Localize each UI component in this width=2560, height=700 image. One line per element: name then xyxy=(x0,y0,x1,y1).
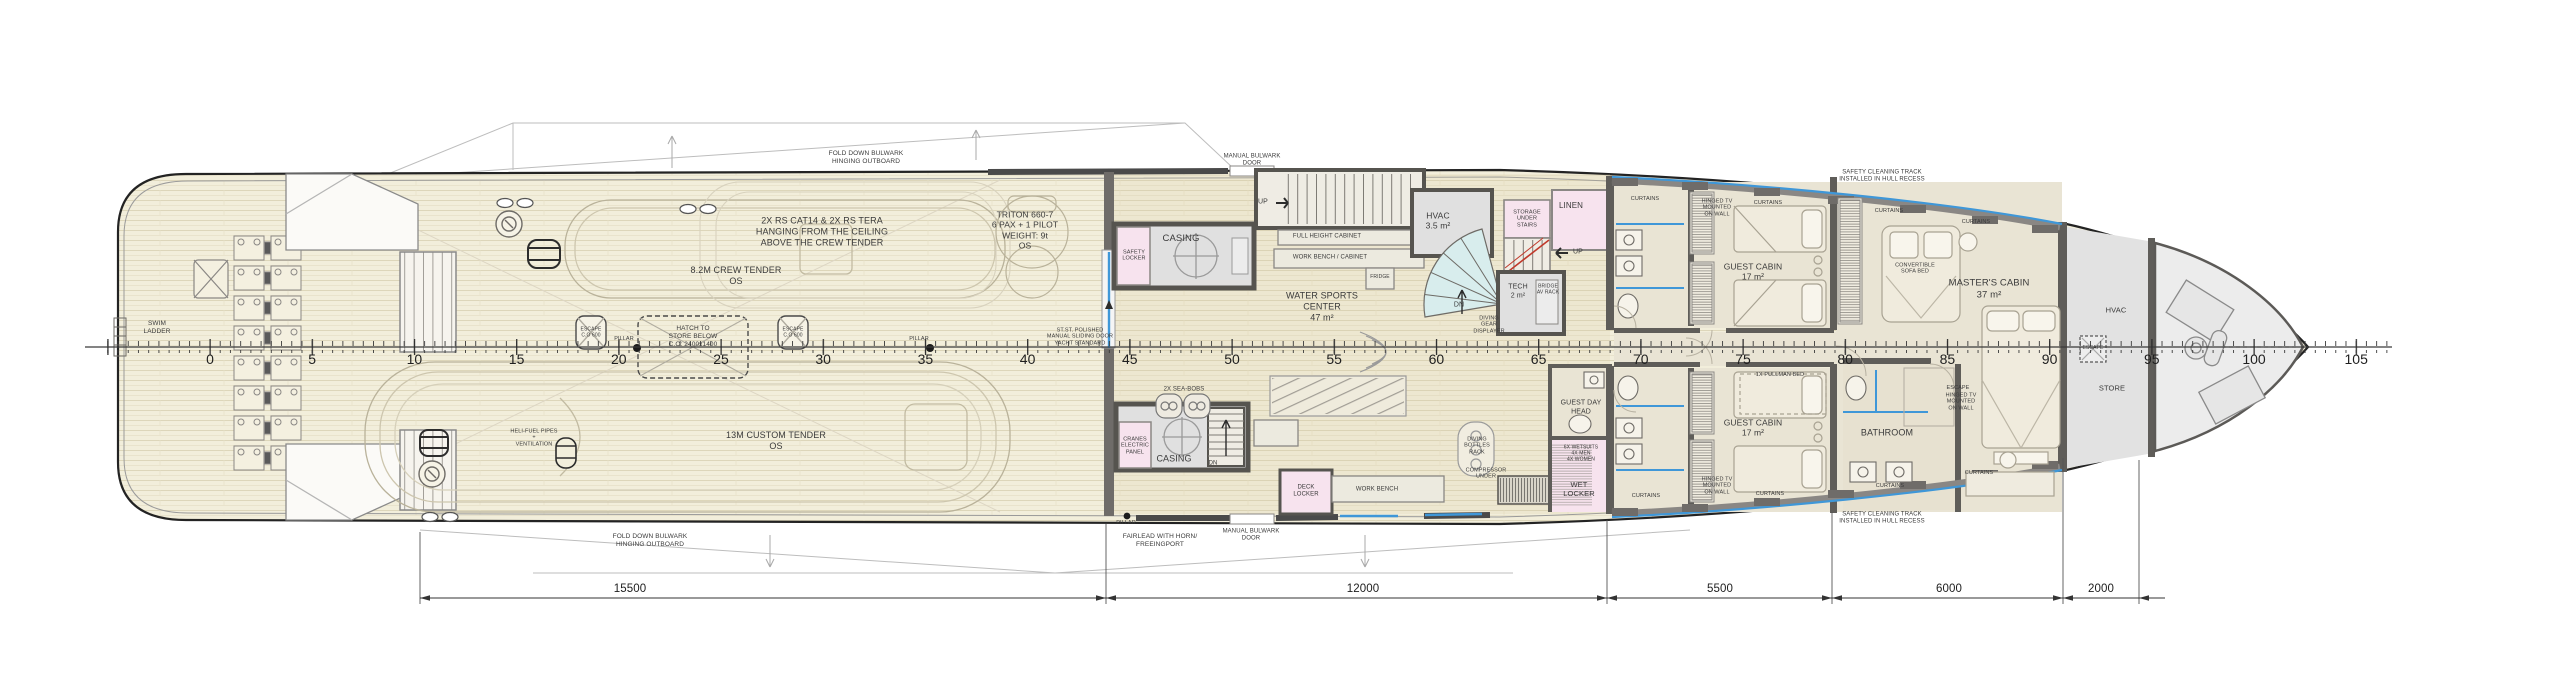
toilet-icon xyxy=(1569,415,1591,433)
deck-hatch xyxy=(194,260,228,298)
station-label: 35 xyxy=(918,351,934,367)
sink-icon xyxy=(1616,256,1642,276)
cranes-panel-room xyxy=(1119,422,1151,468)
work-bench-bottom xyxy=(1332,476,1444,502)
station-label: 50 xyxy=(1224,351,1240,367)
station-label: 60 xyxy=(1429,351,1445,367)
pillar-dot-3 xyxy=(1124,513,1131,520)
toilet-icon xyxy=(1618,294,1638,318)
station-label: 80 xyxy=(1837,351,1853,367)
linen-room xyxy=(1552,190,1610,250)
capstan-fwd xyxy=(419,461,445,487)
toilet-icon xyxy=(1846,376,1866,400)
station-label: 95 xyxy=(2144,351,2160,367)
sink-icon xyxy=(1886,462,1912,482)
storage-under-stairs-room xyxy=(1504,200,1550,238)
stool xyxy=(2000,452,2016,468)
diving-bottles-rack-icon xyxy=(1458,422,1494,476)
station-label: 55 xyxy=(1326,351,1342,367)
vanity xyxy=(1966,472,2054,496)
station-label: 30 xyxy=(815,351,831,367)
sink-icon xyxy=(1616,230,1642,250)
side-table xyxy=(1959,233,1977,251)
av-rack xyxy=(1536,280,1558,324)
louver-grille xyxy=(1500,478,1548,502)
station-label: 85 xyxy=(1940,351,1956,367)
station-label: 75 xyxy=(1735,351,1751,367)
station-label: 25 xyxy=(713,351,729,367)
station-label: 90 xyxy=(2042,351,2058,367)
sink-icon xyxy=(1850,462,1876,482)
station-label: 105 xyxy=(2345,351,2368,367)
station-label: 5 xyxy=(308,351,316,367)
station-label: 0 xyxy=(206,351,214,367)
station-label: 40 xyxy=(1020,351,1036,367)
fridge-box xyxy=(1366,268,1394,289)
full-height-cabinet xyxy=(1278,230,1422,245)
station-label: 20 xyxy=(611,351,627,367)
sink-icon xyxy=(1616,418,1642,438)
toilet-icon xyxy=(1618,376,1638,400)
station-label: 70 xyxy=(1633,351,1649,367)
deck-locker-room xyxy=(1280,470,1332,514)
station-label: 15 xyxy=(509,351,525,367)
table xyxy=(1254,420,1298,446)
deck-plan-drawing xyxy=(0,0,2560,700)
station-label: 10 xyxy=(407,351,423,367)
safety-locker-room xyxy=(1117,227,1150,285)
deck-plan-canvas: SWIM LADDER FOLD DOWN BULWARK HINGING OU… xyxy=(0,0,2560,700)
stairs-dn-casing xyxy=(1208,408,1244,466)
station-label: 45 xyxy=(1122,351,1138,367)
work-bench-cabinet xyxy=(1274,249,1424,268)
capstan-aft xyxy=(496,211,522,237)
sink-icon xyxy=(1584,372,1604,388)
station-label: 65 xyxy=(1531,351,1547,367)
station-label: 100 xyxy=(2242,351,2265,367)
fuel-fill-icon xyxy=(556,438,576,468)
sink-icon xyxy=(1616,444,1642,464)
